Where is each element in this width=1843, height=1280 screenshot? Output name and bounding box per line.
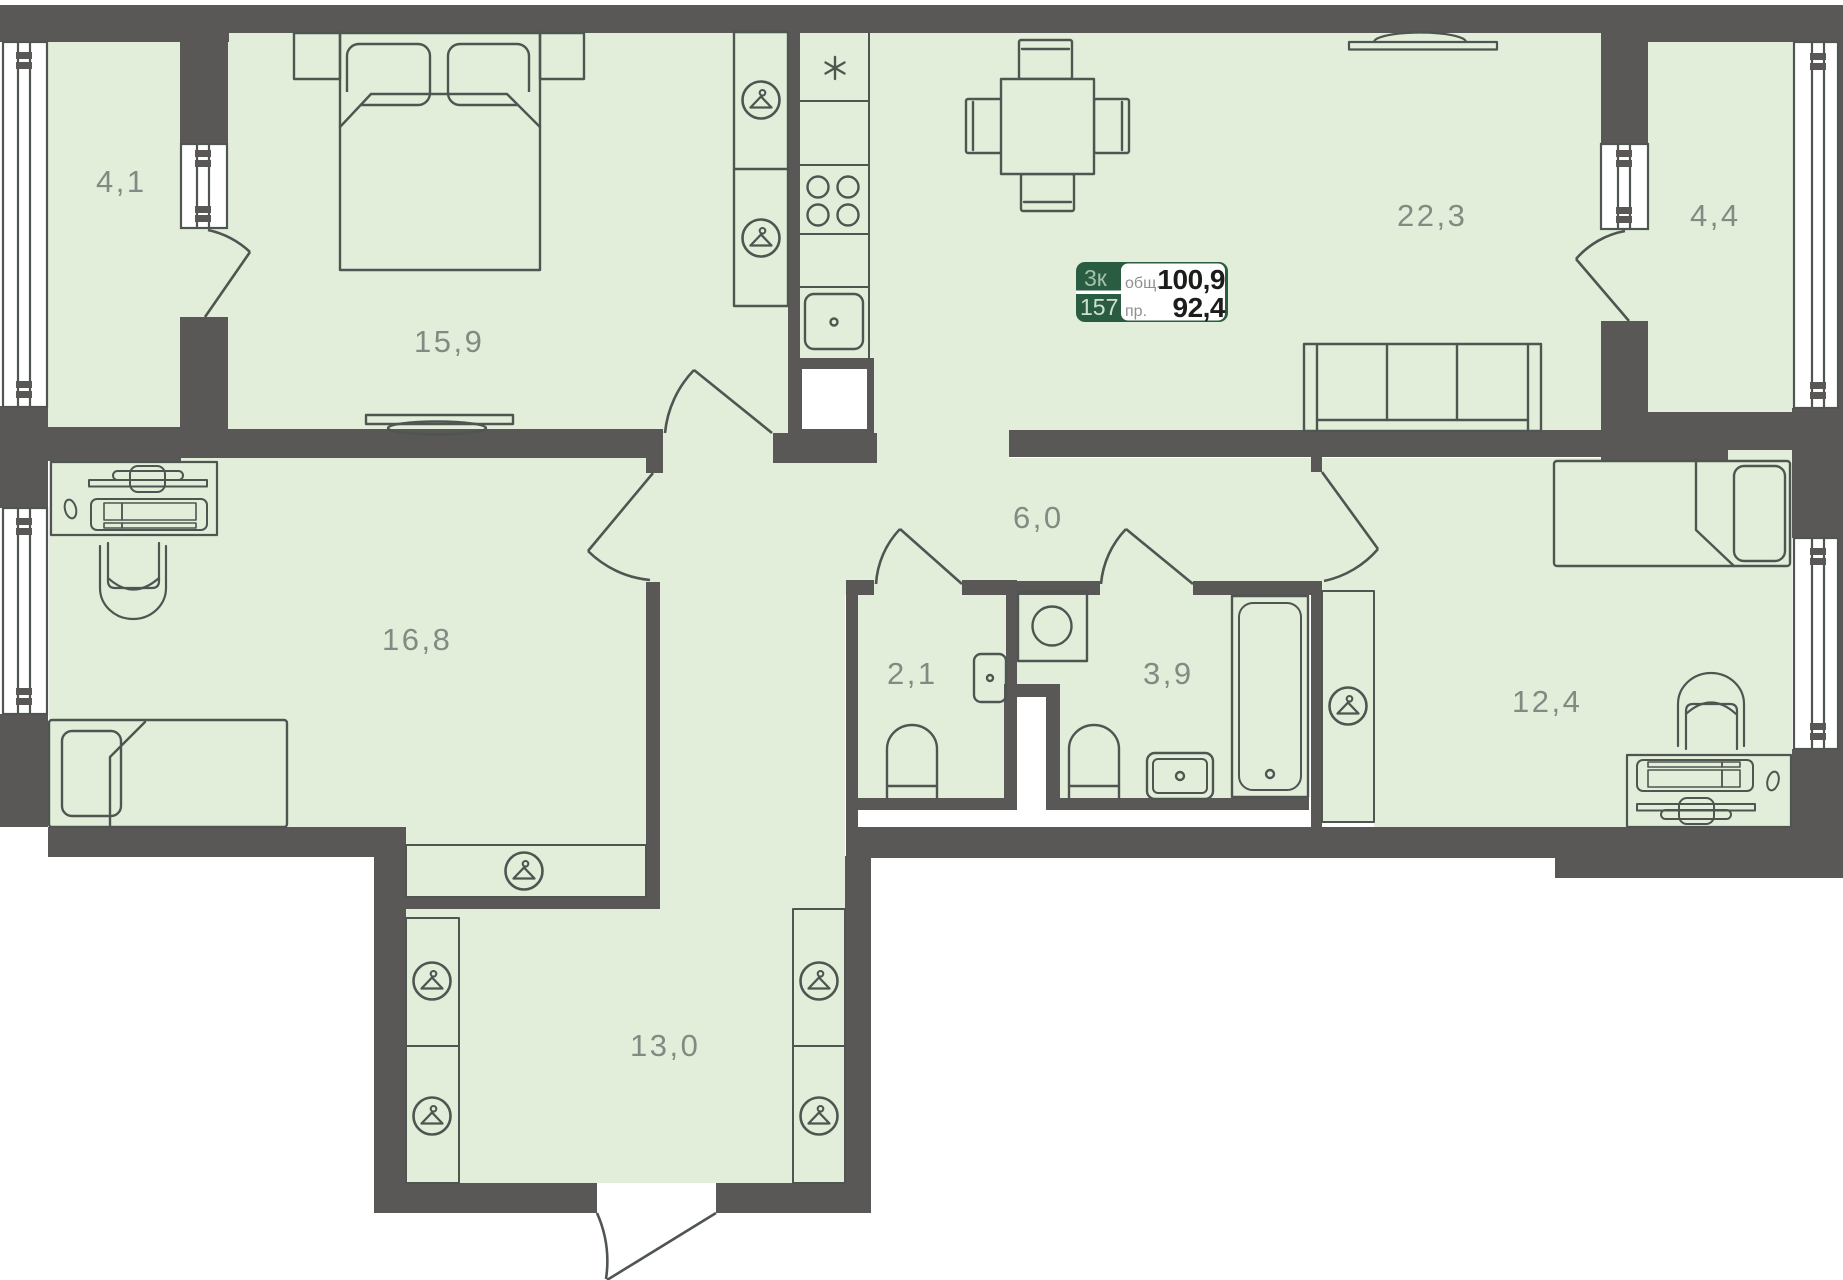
svg-text:4,1: 4,1 [96,164,147,199]
svg-text:6,0: 6,0 [1013,500,1064,535]
svg-text:92,4: 92,4 [1173,292,1226,323]
svg-text:22,3: 22,3 [1397,198,1467,233]
svg-text:13,0: 13,0 [630,1028,700,1063]
svg-text:157: 157 [1080,294,1118,320]
svg-text:2,1: 2,1 [887,656,938,691]
svg-text:12,4: 12,4 [1512,684,1582,719]
svg-text:100,9: 100,9 [1157,264,1225,295]
svg-text:15,9: 15,9 [414,324,484,359]
svg-text:4,4: 4,4 [1690,198,1741,233]
svg-text:16,8: 16,8 [382,622,452,657]
svg-text:общ.: общ. [1125,275,1161,292]
svg-text:пр.: пр. [1125,303,1147,320]
svg-text:3,9: 3,9 [1143,656,1194,691]
svg-text:3к: 3к [1084,265,1108,291]
